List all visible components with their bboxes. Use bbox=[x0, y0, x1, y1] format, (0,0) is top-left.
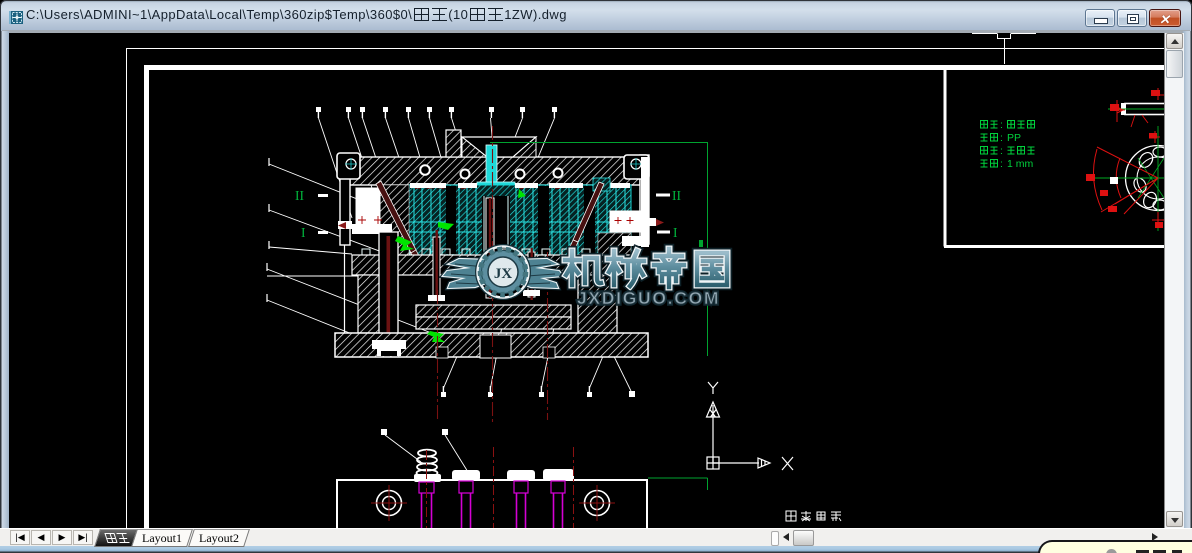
svg-text:II: II bbox=[295, 188, 304, 203]
svg-text:JX: JX bbox=[494, 266, 513, 282]
svg-text::: : bbox=[1000, 158, 1003, 170]
svg-text::: : bbox=[1000, 132, 1003, 144]
svg-text:II: II bbox=[672, 188, 681, 203]
svg-text::: : bbox=[1000, 119, 1003, 131]
svg-text:JXDIGUO.COM: JXDIGUO.COM bbox=[577, 288, 720, 308]
svg-text:I: I bbox=[673, 225, 678, 240]
svg-text::: : bbox=[1000, 145, 1003, 157]
svg-text:I: I bbox=[301, 225, 306, 240]
svg-text:PP: PP bbox=[1007, 132, 1021, 144]
svg-text:1 mm: 1 mm bbox=[1007, 158, 1034, 170]
